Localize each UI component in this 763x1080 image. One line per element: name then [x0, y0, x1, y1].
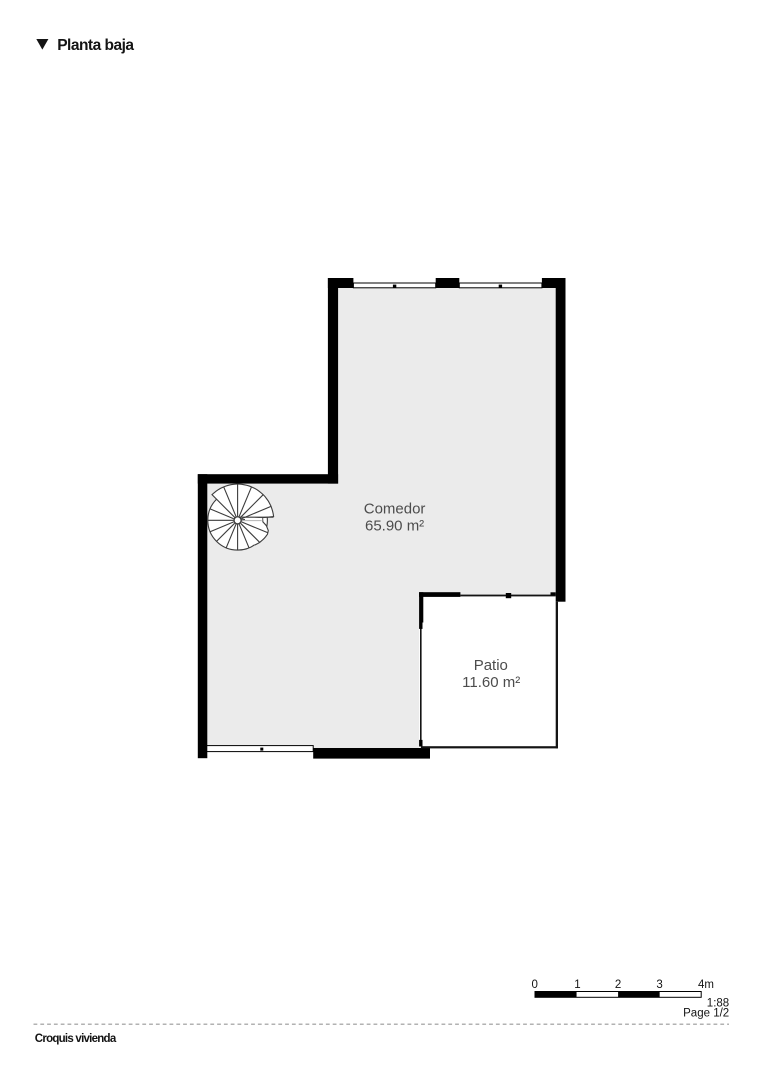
svg-text:Planta baja: Planta baja — [57, 37, 134, 54]
svg-text:11.60 m²: 11.60 m² — [462, 674, 520, 691]
svg-text:3: 3 — [656, 979, 662, 991]
svg-text:Comedor: Comedor — [364, 501, 426, 518]
svg-text:1: 1 — [574, 979, 580, 991]
svg-text:Croquis vivienda: Croquis vivienda — [35, 1033, 117, 1045]
svg-text:4m: 4m — [698, 979, 714, 991]
svg-text:0: 0 — [531, 979, 537, 991]
svg-text:65.90 m²: 65.90 m² — [365, 518, 424, 535]
svg-text:Page 1/2: Page 1/2 — [683, 1007, 729, 1019]
svg-text:Patio: Patio — [474, 657, 508, 674]
svg-text:2: 2 — [615, 979, 621, 991]
